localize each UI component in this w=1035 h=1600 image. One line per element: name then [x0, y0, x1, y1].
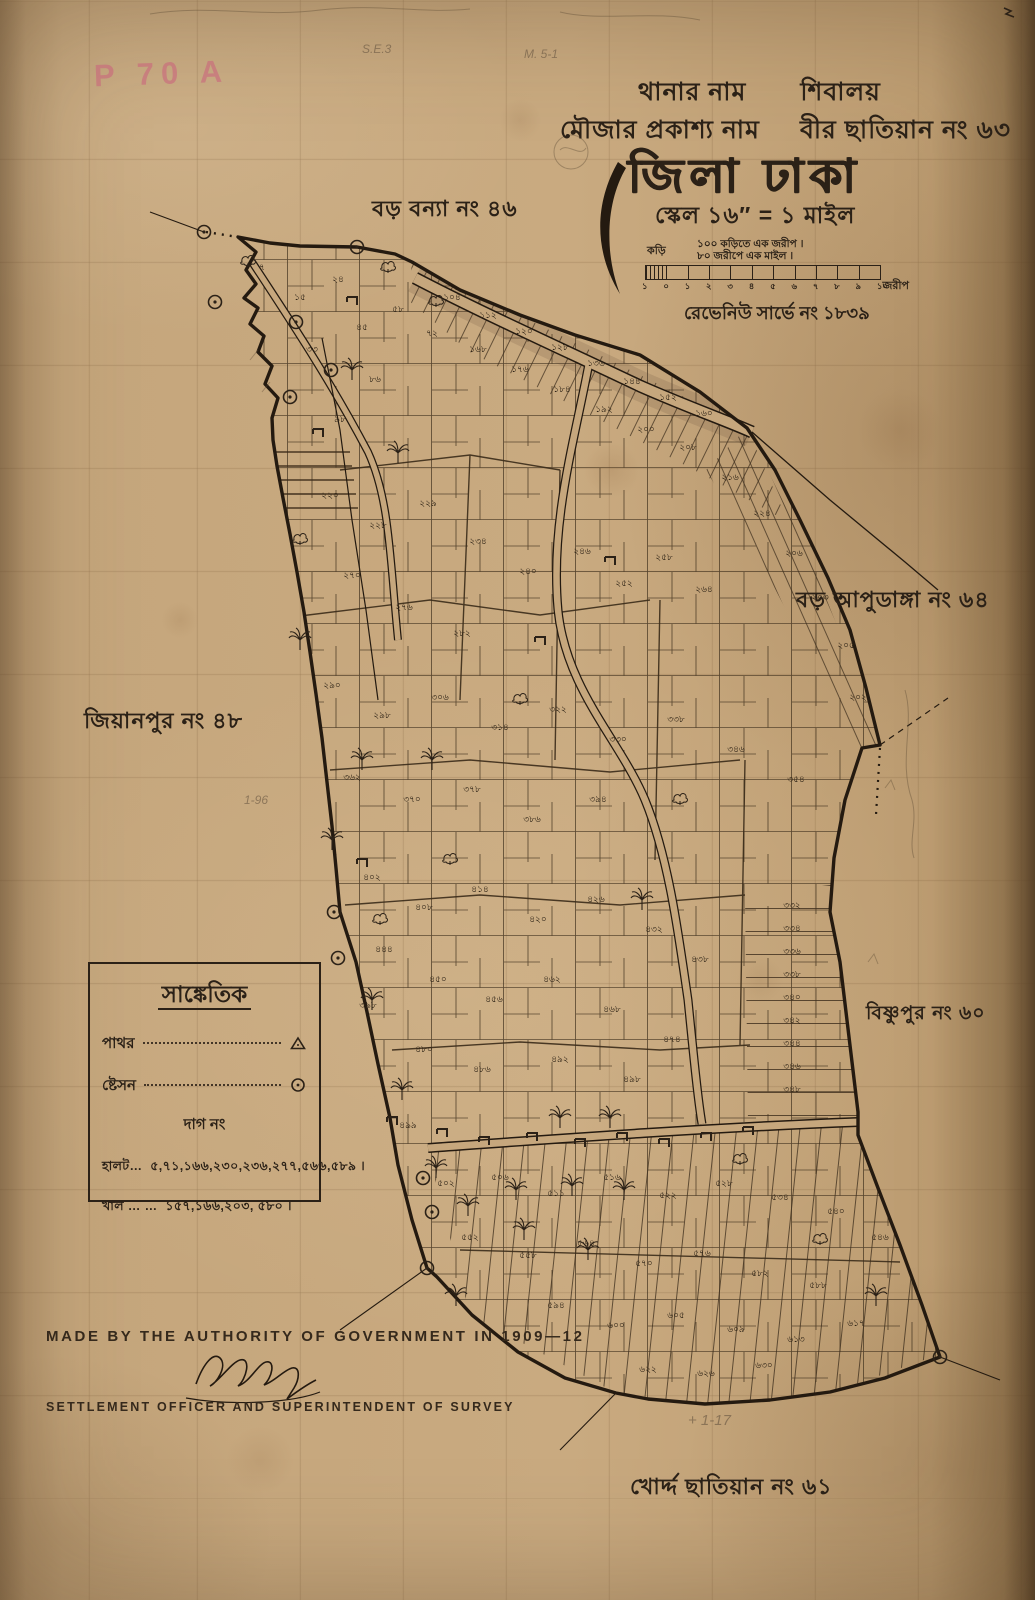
station-marker [198, 226, 211, 239]
scale-note-1: ১০০ কড়িতে এক জরীপ । [697, 238, 901, 250]
thana-label: থানার নাম [638, 72, 746, 115]
plot-number: ৩৭৮ [463, 784, 481, 794]
legend-row-stone: পাথর [102, 1032, 307, 1057]
plot-number: ৪৩২ [645, 924, 663, 934]
scale-unit-right: জরীপ [882, 277, 909, 296]
plot-number: ৩৪৬ [727, 744, 745, 754]
plot-number: ১২০ [515, 326, 533, 336]
plot-number: ৩৩ [306, 344, 318, 354]
legend-row-station: ষ্টেসন [102, 1074, 307, 1099]
plot-number: ১৫২ [659, 392, 677, 402]
neighbor-label-jiyanpur: জিয়ানপুর নং ৪৮ [84, 704, 243, 741]
plot-number: ৫৮২ [751, 1268, 769, 1278]
legend-khal-line: খাল … … ১৫৭,১৬৬,২০৩, ৫৮০ । [102, 1198, 307, 1218]
plot-number: ৬২৬ [697, 1368, 715, 1378]
plot-number: ৩৪০ [783, 992, 801, 1002]
thana-value: শিবালয় [800, 72, 880, 115]
plot-number: ১৯২ [595, 404, 613, 414]
plot-number: ৪৫ [356, 322, 368, 332]
plot-number: ৫৭৬ [693, 1248, 711, 1258]
plot-number: ৩৪৪ [783, 1038, 801, 1048]
plot-number: ৬০০ [607, 1320, 625, 1330]
plot-number: ৩২২ [549, 704, 567, 714]
plot-number: ৫৯৪ [547, 1300, 565, 1310]
plot-number: ১১২ [479, 310, 497, 320]
plot-number: ৫৪০ [827, 1206, 845, 1216]
stone-triangle-icon [289, 1036, 307, 1054]
halot-label: হালট… [102, 1159, 142, 1173]
plot-number: ৩৯৮ [359, 1000, 377, 1010]
plot-number: ১৬৮ [469, 344, 487, 354]
plot-number: ১০৪ [443, 292, 461, 302]
scale-unit-left: কড়ি [647, 242, 666, 261]
legend-leader [144, 1083, 281, 1086]
plot-number: ৫৬৪ [577, 1238, 595, 1248]
plot-number: ২১৬ [721, 472, 739, 482]
plot-number: ২০৮ [679, 442, 697, 452]
station-marker [332, 952, 345, 965]
plot-number: ৩৪৮ [783, 1084, 801, 1094]
legend-leader [143, 1041, 282, 1044]
plot-number: ২২০ [321, 490, 339, 500]
revenue-survey-line: রেভেনিউ সার্ভে নং ১৮৩৯ [684, 299, 870, 330]
plot-number: ৪৯৯ [399, 1120, 417, 1130]
station-marker [209, 296, 222, 309]
legend-dag-heading: দাগ নং [102, 1113, 307, 1138]
plot-number: ২৩৪ [469, 536, 487, 546]
plot-number: ৫৪৬ [871, 1232, 889, 1242]
scale-bar-hatched-segment [646, 266, 667, 279]
plot-number: ৩৮৬ [523, 814, 541, 824]
registry-stamp: P 70 A [93, 54, 229, 95]
plot-number: ২০২ [849, 692, 867, 702]
plot-number: ৩৩০ [609, 734, 627, 744]
scale-notes: ১০০ কড়িতে এক জরীপ । ৮০ জরীপে এক মাইল । [697, 238, 901, 262]
pencil-note-m51: M. 5-1 [524, 47, 558, 61]
plot-number: ৫২২ [659, 1190, 677, 1200]
pencil-note-117: + 1-17 [688, 1412, 731, 1429]
plot-number: ৪২৬ [587, 894, 605, 904]
plot-number: ২৯৮ [373, 710, 391, 720]
plot-number: ২৭০ [343, 570, 361, 580]
plot-number: ৪৫৬ [485, 994, 503, 1004]
plot-number: ২২৮ [369, 520, 387, 530]
neighbor-label-bishnupur: বিষ্ণুপুর নং ৬০ [866, 999, 986, 1031]
legend-box: সাঙ্কেতিক পাথর ষ্টেসন দাগ নং হালট… ৫,৭১,… [88, 962, 321, 1202]
plot-number: ৫৩৪ [771, 1192, 789, 1202]
plot-number: ৩০৬ [431, 692, 449, 702]
plot-number: ৪০২ [363, 872, 381, 882]
plot-number: ৬১৭ [847, 1318, 865, 1328]
legend-halot-line: হালট… ৫,৭১,১৬৬,২৩০,২৩৬,২৭৭,৫৬৬,৫৮৯ । [102, 1158, 307, 1178]
neighbor-label-bara-apudanga: বড় আপুডাঙ্গা নং ৬৪ [796, 583, 990, 620]
khal-label: খাল … … [102, 1199, 158, 1213]
scale-statement: স্কেল ১৬″ = ১ মাইল [655, 197, 855, 236]
plot-number: ২৪ [332, 274, 344, 284]
scale-bar: কড়ি ১০০ কড়িতে এক জরীপ । ৮০ জরীপে এক মা… [645, 238, 901, 294]
plot-number: ৮৬ [369, 374, 381, 384]
neighbor-label-bara-banya: বড় বন্যা নং ৪৬ [372, 192, 518, 229]
plot-number: ৪৯৮ [623, 1074, 641, 1084]
plot-number: ৩৪৬ [783, 1061, 801, 1071]
plot-number: ৫৫৮ [519, 1250, 537, 1260]
plot-number: ২৫৮ [655, 552, 673, 562]
legend-stone-label: পাথর [102, 1032, 135, 1057]
plot-number: ১৭৬ [511, 364, 529, 374]
plot-number: ৫০২ [437, 1178, 455, 1188]
authority-line: MADE BY THE AUTHORITY OF GOVERNMENT IN 1… [46, 1328, 585, 1345]
plot-number: ১৩৬ [587, 358, 605, 368]
scale-note-2: ৮০ জরীপে এক মাইল । [697, 250, 901, 262]
plot-number: ৩৭০ [403, 794, 421, 804]
plot-number: ৬০৫ [667, 1310, 685, 1320]
station-circle-icon [289, 1077, 307, 1097]
plot-number: ৪৮৬ [473, 1064, 491, 1074]
plot-number: ২৪৬ [573, 546, 591, 556]
plot-number: ২০৫ [837, 640, 855, 650]
corner-ink-mark [1004, 8, 1014, 17]
officer-line: SETTLEMENT OFFICER AND SUPERINTENDENT OF… [46, 1400, 515, 1414]
plot-number: ৩৩২ [783, 900, 801, 910]
signature [186, 1356, 320, 1402]
halot-numbers: ৫,৭১,১৬৬,২৩০,২৩৬,২৭৭,৫৬৬,৫৮৯ । [150, 1159, 365, 1173]
plot-number: ৬২২ [639, 1364, 657, 1374]
scale-bar-ticks: ১০ ১২ ৩৪ ৫৬ ৭৮ ৯১০ [642, 280, 888, 294]
plot-number: ৭২ [426, 328, 438, 338]
plot-number: ৩৩৮ [783, 969, 801, 979]
khal-numbers: ১৫৭,১৬৬,২০৩, ৫৮০ । [165, 1199, 291, 1213]
plot-number: ৫১১ [547, 1188, 565, 1198]
plot-number: ৫০৬ [491, 1172, 509, 1182]
plot-number: ১২৮ [551, 342, 569, 352]
parcel-fabric [200, 230, 945, 1410]
plot-number: ১৬০ [695, 408, 713, 418]
plot-number: ৫৫২ [461, 1232, 479, 1242]
plot-number: ৩৪২ [783, 1015, 801, 1025]
legend-station-label: ষ্টেসন [102, 1074, 136, 1099]
plot-number: ২২৯ [419, 498, 437, 508]
plot-number: ৪২০ [529, 914, 547, 924]
plot-number: ২৮২ [453, 628, 471, 638]
scale-bar-graphic [645, 265, 881, 280]
legend-title: সাঙ্কেতিক [102, 976, 307, 1015]
plot-number: ১৮৪ [553, 384, 571, 394]
pencil-note-se3: S.E.3 [362, 42, 391, 56]
plot-number: ৯৮ [334, 414, 346, 424]
plot-number: ৩৬২ [343, 772, 361, 782]
plot-number: ২৪০ [519, 566, 537, 576]
plot-number: ৪৫০ [429, 974, 447, 984]
plot-number: ৪৮০ [415, 1044, 433, 1054]
plot-number: ৩৩৮ [667, 714, 685, 724]
plot-number: ৪৯২ [551, 1054, 569, 1064]
plot-number: ২৯০ [323, 680, 341, 690]
plot-number: ৫৮৮ [809, 1280, 827, 1290]
plot-number: ৫৭০ [635, 1258, 653, 1268]
plot-number: ৭ [259, 262, 265, 272]
plot-number: ৪৭৪ [663, 1034, 681, 1044]
plot-number: ২০৬ [785, 548, 803, 558]
plot-number: ২২৪ [753, 508, 771, 518]
plot-number: ৬১৩ [787, 1334, 805, 1344]
plot-number: ৬৩০ [755, 1360, 773, 1370]
map-sheet: ৭১৫২৪৩৩৪৫৫৮৭২৮৬৯৮১০৪১১২১২০১২৮১৩৬১৪৪১৫২১৬… [0, 0, 1035, 1600]
plot-number: ৪৬২ [543, 974, 561, 984]
plot-number: ১৪৪ [623, 376, 641, 386]
plot-number: ৫৮ [392, 304, 404, 314]
plot-number: ৩৩৪ [783, 923, 801, 933]
title-brace [600, 162, 626, 294]
plot-number: ৪৩৮ [691, 954, 709, 964]
pencil-note-196: 1-96 [244, 793, 268, 807]
plot-number: ২৭৬ [395, 602, 413, 612]
plot-number: ৩৯৪ [589, 794, 607, 804]
plot-number: ৪৬৮ [603, 1004, 621, 1014]
plot-number: ৩৫৪ [787, 774, 805, 784]
plot-number: ৫২৮ [715, 1178, 733, 1188]
plot-number: ৫১৬ [603, 1172, 621, 1182]
neighbor-label-khordda-chhatiyan: খোর্দ্দ ছাতিয়ান নং ৬১ [630, 1470, 833, 1507]
plot-number: ৬০৯ [727, 1324, 745, 1334]
plot-number: ২৬৪ [695, 584, 713, 594]
plot-number: ৩১৪ [491, 722, 509, 732]
plot-number: ৩৩৬ [783, 946, 801, 956]
plot-number: ৪১৪ [471, 884, 489, 894]
plot-number: ৪৪৪ [375, 944, 393, 954]
plot-number: ২০০ [637, 424, 655, 434]
plot-number: ১৫ [294, 292, 306, 302]
plot-number: ২৫২ [615, 578, 633, 588]
thana-line: থানার নাম শিবালয় [638, 72, 881, 115]
plot-number: ৪০৮ [415, 902, 433, 912]
